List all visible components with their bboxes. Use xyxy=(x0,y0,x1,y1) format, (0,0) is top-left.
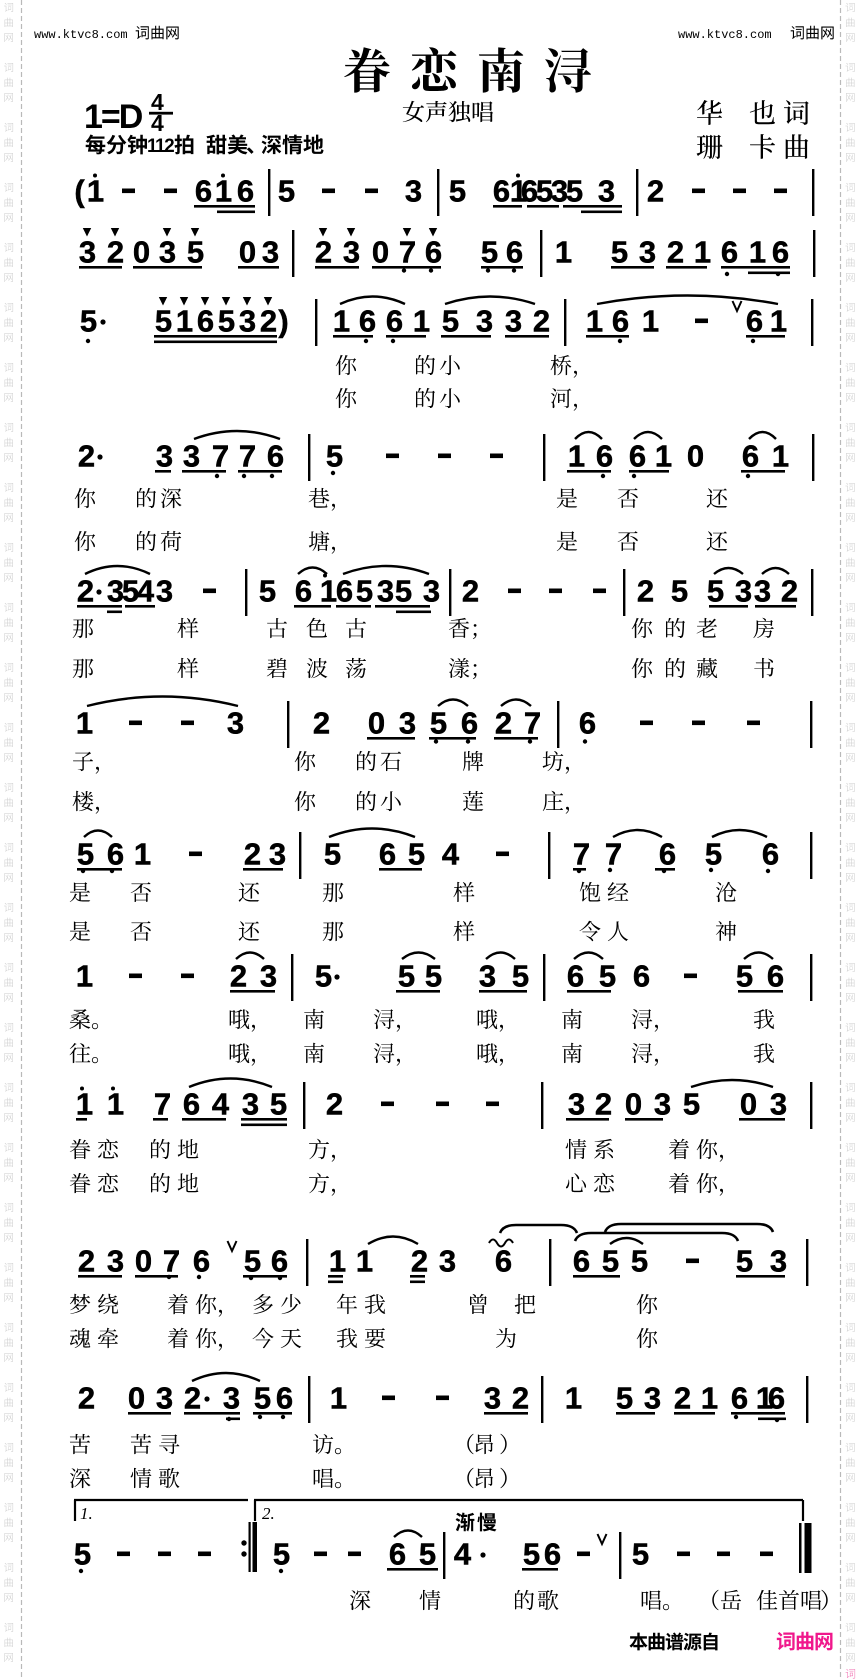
svg-text:6: 6 xyxy=(567,958,584,993)
svg-text:1: 1 xyxy=(107,1086,124,1121)
svg-text:1: 1 xyxy=(176,303,193,338)
svg-text:3: 3 xyxy=(770,1086,787,1121)
svg-text:6: 6 xyxy=(359,303,376,338)
svg-text:6: 6 xyxy=(544,1536,561,1571)
svg-text:6: 6 xyxy=(197,303,214,338)
svg-text:1: 1 xyxy=(772,438,789,473)
svg-text:2: 2 xyxy=(674,1380,691,1415)
svg-text:2: 2 xyxy=(533,303,550,338)
svg-text:5: 5 xyxy=(616,1380,633,1415)
svg-text:5: 5 xyxy=(270,1086,287,1121)
svg-text:1: 1 xyxy=(770,303,787,338)
svg-text:5: 5 xyxy=(356,573,373,608)
svg-text:5: 5 xyxy=(611,234,628,269)
svg-text:6: 6 xyxy=(767,958,784,993)
svg-text:3: 3 xyxy=(505,303,522,338)
svg-text:5: 5 xyxy=(631,1243,648,1278)
svg-text:6: 6 xyxy=(506,234,523,269)
svg-text:6: 6 xyxy=(195,173,212,208)
svg-text:1: 1 xyxy=(87,173,104,208)
svg-text:5: 5 xyxy=(671,573,688,608)
svg-text:5: 5 xyxy=(278,173,295,208)
svg-text:3: 3 xyxy=(156,1380,173,1415)
svg-text:3: 3 xyxy=(754,573,771,608)
svg-text:5: 5 xyxy=(315,958,332,993)
svg-text:6: 6 xyxy=(183,1086,200,1121)
svg-text:5: 5 xyxy=(408,836,425,871)
svg-text:2: 2 xyxy=(260,303,277,338)
svg-text:3: 3 xyxy=(598,173,615,208)
svg-text:2: 2 xyxy=(495,705,512,740)
svg-text:6: 6 xyxy=(267,438,284,473)
svg-text:3: 3 xyxy=(399,705,416,740)
svg-text:6: 6 xyxy=(633,958,650,993)
svg-text:7: 7 xyxy=(399,234,416,269)
svg-text:7: 7 xyxy=(163,1243,180,1278)
svg-text:5: 5 xyxy=(187,234,204,269)
svg-text:1: 1 xyxy=(76,705,93,740)
svg-text:1: 1 xyxy=(568,438,585,473)
svg-text:0: 0 xyxy=(239,234,256,269)
svg-text:3: 3 xyxy=(568,1086,585,1121)
svg-text:3: 3 xyxy=(262,234,279,269)
svg-text:0: 0 xyxy=(625,1086,642,1121)
svg-text:5: 5 xyxy=(632,1536,649,1571)
svg-text:6: 6 xyxy=(596,438,613,473)
svg-text:3: 3 xyxy=(79,234,96,269)
svg-text:4: 4 xyxy=(442,836,460,871)
svg-text:7: 7 xyxy=(605,836,622,871)
svg-text:6: 6 xyxy=(762,836,779,871)
svg-text:2: 2 xyxy=(667,234,684,269)
svg-text:0: 0 xyxy=(133,234,150,269)
svg-text:2: 2 xyxy=(78,438,95,473)
svg-text:1: 1 xyxy=(333,303,350,338)
svg-text:5: 5 xyxy=(602,1243,619,1278)
svg-text:1: 1 xyxy=(134,836,151,871)
svg-text:6: 6 xyxy=(731,1380,748,1415)
svg-text:3: 3 xyxy=(654,1086,671,1121)
svg-text:1: 1 xyxy=(701,1380,718,1415)
svg-text:7: 7 xyxy=(524,705,541,740)
svg-text:2: 2 xyxy=(230,958,247,993)
svg-text:1: 1 xyxy=(356,1243,373,1278)
svg-text:1: 1 xyxy=(565,1380,582,1415)
svg-text:6: 6 xyxy=(389,1536,406,1571)
svg-text:2: 2 xyxy=(637,573,654,608)
svg-text:6: 6 xyxy=(612,303,629,338)
svg-text:5: 5 xyxy=(254,1380,271,1415)
svg-text:3: 3 xyxy=(107,1243,124,1278)
svg-text:5: 5 xyxy=(324,836,341,871)
svg-text:6: 6 xyxy=(271,1243,288,1278)
svg-text:6: 6 xyxy=(425,234,442,269)
svg-text:112: 112 xyxy=(147,136,174,157)
svg-text:3: 3 xyxy=(343,234,360,269)
svg-text:5: 5 xyxy=(244,1243,261,1278)
svg-text:5: 5 xyxy=(512,958,529,993)
svg-text:6: 6 xyxy=(107,836,124,871)
svg-text:1: 1 xyxy=(655,438,672,473)
svg-text:2: 2 xyxy=(244,836,261,871)
svg-text:1=D: 1=D xyxy=(84,98,143,136)
svg-text:2: 2 xyxy=(326,1086,343,1121)
svg-text:4: 4 xyxy=(151,110,164,136)
svg-text:3: 3 xyxy=(260,958,277,993)
svg-text:3: 3 xyxy=(479,958,496,993)
svg-text:5: 5 xyxy=(705,836,722,871)
svg-text:1: 1 xyxy=(320,573,337,608)
svg-text:5: 5 xyxy=(599,958,616,993)
svg-text:5: 5 xyxy=(326,438,343,473)
svg-text:7: 7 xyxy=(154,1086,171,1121)
svg-text:2: 2 xyxy=(78,1380,95,1415)
svg-text:2: 2 xyxy=(781,573,798,608)
svg-text:5: 5 xyxy=(77,836,94,871)
svg-text:4: 4 xyxy=(454,1536,472,1571)
svg-text:5: 5 xyxy=(419,1536,436,1571)
svg-text:1: 1 xyxy=(642,303,659,338)
svg-text:5: 5 xyxy=(259,573,276,608)
svg-text:1: 1 xyxy=(555,234,572,269)
svg-text:6: 6 xyxy=(237,173,254,208)
svg-text:1.: 1. xyxy=(80,1504,93,1523)
svg-text:6: 6 xyxy=(573,1243,590,1278)
svg-text:3: 3 xyxy=(439,1243,456,1278)
svg-text:6: 6 xyxy=(746,303,763,338)
svg-text:6: 6 xyxy=(386,303,403,338)
svg-text:5: 5 xyxy=(218,303,235,338)
svg-text:5: 5 xyxy=(74,1536,91,1571)
svg-text:2: 2 xyxy=(77,573,94,608)
svg-text:4: 4 xyxy=(137,573,155,608)
svg-text:6: 6 xyxy=(721,234,738,269)
svg-text:6: 6 xyxy=(768,1380,785,1415)
svg-text:7: 7 xyxy=(239,438,256,473)
svg-text:1: 1 xyxy=(413,303,430,338)
svg-text:2: 2 xyxy=(107,234,124,269)
svg-text:0: 0 xyxy=(135,1243,152,1278)
svg-text:0: 0 xyxy=(128,1380,145,1415)
svg-text:1: 1 xyxy=(694,234,711,269)
svg-text:6: 6 xyxy=(461,705,478,740)
svg-text:5: 5 xyxy=(707,573,724,608)
svg-text:6: 6 xyxy=(379,836,396,871)
svg-text:(: ( xyxy=(74,173,85,208)
svg-text:5: 5 xyxy=(425,958,442,993)
svg-text:5: 5 xyxy=(430,705,447,740)
svg-text:1: 1 xyxy=(215,173,232,208)
svg-text:5: 5 xyxy=(395,573,412,608)
svg-text:4: 4 xyxy=(212,1086,230,1121)
svg-text:3: 3 xyxy=(405,173,422,208)
svg-text:1: 1 xyxy=(749,234,766,269)
svg-text:5: 5 xyxy=(481,234,498,269)
svg-text:2: 2 xyxy=(512,1380,529,1415)
svg-text:2: 2 xyxy=(315,234,332,269)
svg-text:3: 3 xyxy=(183,438,200,473)
svg-text:2: 2 xyxy=(462,573,479,608)
svg-text:5: 5 xyxy=(80,303,97,338)
svg-text:3: 3 xyxy=(639,234,656,269)
svg-text:6: 6 xyxy=(772,234,789,269)
svg-text:2: 2 xyxy=(595,1086,612,1121)
svg-text:6: 6 xyxy=(336,573,353,608)
svg-text:5: 5 xyxy=(566,173,583,208)
svg-text:3: 3 xyxy=(644,1380,661,1415)
svg-text:3: 3 xyxy=(156,573,173,608)
svg-text:3: 3 xyxy=(159,234,176,269)
svg-text:0: 0 xyxy=(368,705,385,740)
svg-text:2.: 2. xyxy=(262,1504,275,1523)
svg-text:0: 0 xyxy=(372,234,389,269)
svg-text:3: 3 xyxy=(423,573,440,608)
svg-text:0: 0 xyxy=(687,438,704,473)
svg-text:1: 1 xyxy=(76,958,93,993)
svg-text:6: 6 xyxy=(495,1243,512,1278)
svg-text:5: 5 xyxy=(398,958,415,993)
svg-text:3: 3 xyxy=(770,1243,787,1278)
svg-text:5: 5 xyxy=(523,1536,540,1571)
svg-text:1: 1 xyxy=(330,1380,347,1415)
svg-text:1: 1 xyxy=(329,1243,346,1278)
svg-text:www.ktvc8.com: www.ktvc8.com xyxy=(678,28,772,42)
svg-text:6: 6 xyxy=(193,1243,210,1278)
svg-text:2: 2 xyxy=(411,1243,428,1278)
svg-text:3: 3 xyxy=(239,303,256,338)
svg-text:5: 5 xyxy=(155,303,172,338)
svg-text:): ) xyxy=(278,303,288,338)
svg-text:3: 3 xyxy=(223,1380,240,1415)
svg-text:3: 3 xyxy=(156,438,173,473)
svg-text:6: 6 xyxy=(276,1380,293,1415)
svg-text:6: 6 xyxy=(629,438,646,473)
svg-text:6: 6 xyxy=(493,173,510,208)
svg-text:3: 3 xyxy=(476,303,493,338)
svg-text:www.ktvc8.com: www.ktvc8.com xyxy=(34,28,128,42)
svg-text:2: 2 xyxy=(184,1380,201,1415)
svg-text:1: 1 xyxy=(586,303,603,338)
svg-text:6: 6 xyxy=(579,705,596,740)
svg-text:3: 3 xyxy=(484,1380,501,1415)
svg-text:2: 2 xyxy=(647,173,664,208)
svg-text:2: 2 xyxy=(313,705,330,740)
svg-text:0: 0 xyxy=(740,1086,757,1121)
svg-text:6: 6 xyxy=(742,438,759,473)
svg-text:5: 5 xyxy=(449,173,466,208)
svg-text:7: 7 xyxy=(573,836,590,871)
svg-text:5: 5 xyxy=(683,1086,700,1121)
svg-text:5: 5 xyxy=(736,1243,753,1278)
svg-text:5: 5 xyxy=(736,958,753,993)
svg-text:3: 3 xyxy=(377,573,394,608)
svg-text:3: 3 xyxy=(227,705,244,740)
svg-text:3: 3 xyxy=(242,1086,259,1121)
svg-text:3: 3 xyxy=(735,573,752,608)
svg-text:7: 7 xyxy=(212,438,229,473)
svg-text:5: 5 xyxy=(442,303,459,338)
svg-text:5: 5 xyxy=(273,1536,290,1571)
svg-text:6: 6 xyxy=(659,836,676,871)
svg-text:2: 2 xyxy=(78,1243,95,1278)
svg-text:3: 3 xyxy=(269,836,286,871)
svg-text:1: 1 xyxy=(76,1086,93,1121)
svg-text:6: 6 xyxy=(295,573,312,608)
